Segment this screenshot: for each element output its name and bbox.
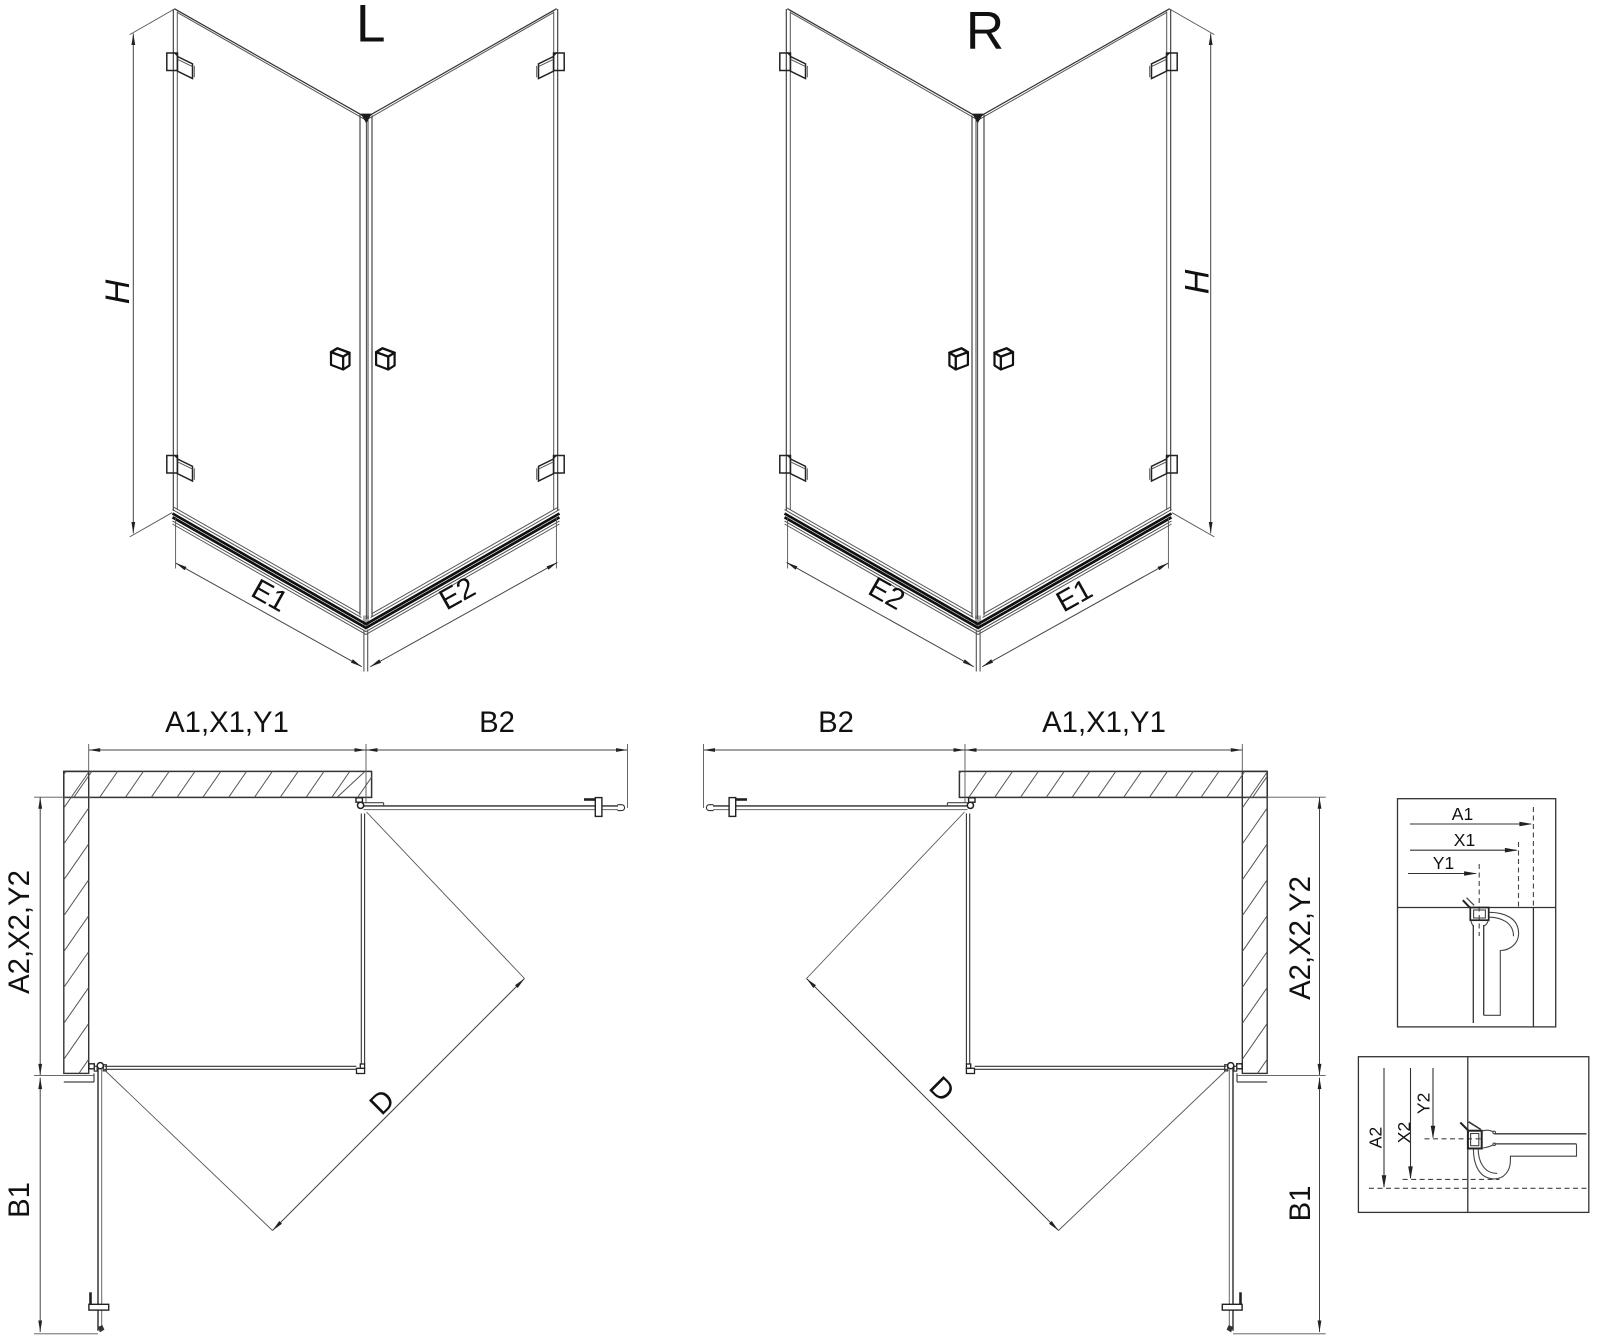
svg-text:H: H: [1179, 269, 1217, 294]
svg-text:A2,X2,Y2: A2,X2,Y2: [3, 870, 36, 994]
svg-text:A2: A2: [1366, 1127, 1386, 1148]
svg-text:X1: X1: [1454, 830, 1475, 850]
svg-text:B1: B1: [1284, 1186, 1317, 1222]
svg-text:R: R: [966, 1, 1004, 60]
svg-text:A2,X2,Y2: A2,X2,Y2: [1284, 876, 1317, 1000]
svg-text:B2: B2: [479, 706, 515, 739]
svg-text:X2: X2: [1394, 1122, 1414, 1143]
svg-text:H: H: [99, 279, 137, 304]
svg-text:B2: B2: [818, 706, 854, 739]
svg-text:L: L: [356, 0, 385, 54]
svg-text:A1,X1,Y1: A1,X1,Y1: [165, 706, 289, 739]
svg-text:A1,X1,Y1: A1,X1,Y1: [1042, 706, 1166, 739]
svg-text:Y1: Y1: [1433, 853, 1454, 873]
svg-text:A1: A1: [1452, 804, 1473, 824]
svg-text:Y2: Y2: [1413, 1093, 1433, 1114]
svg-text:B1: B1: [3, 1182, 36, 1218]
